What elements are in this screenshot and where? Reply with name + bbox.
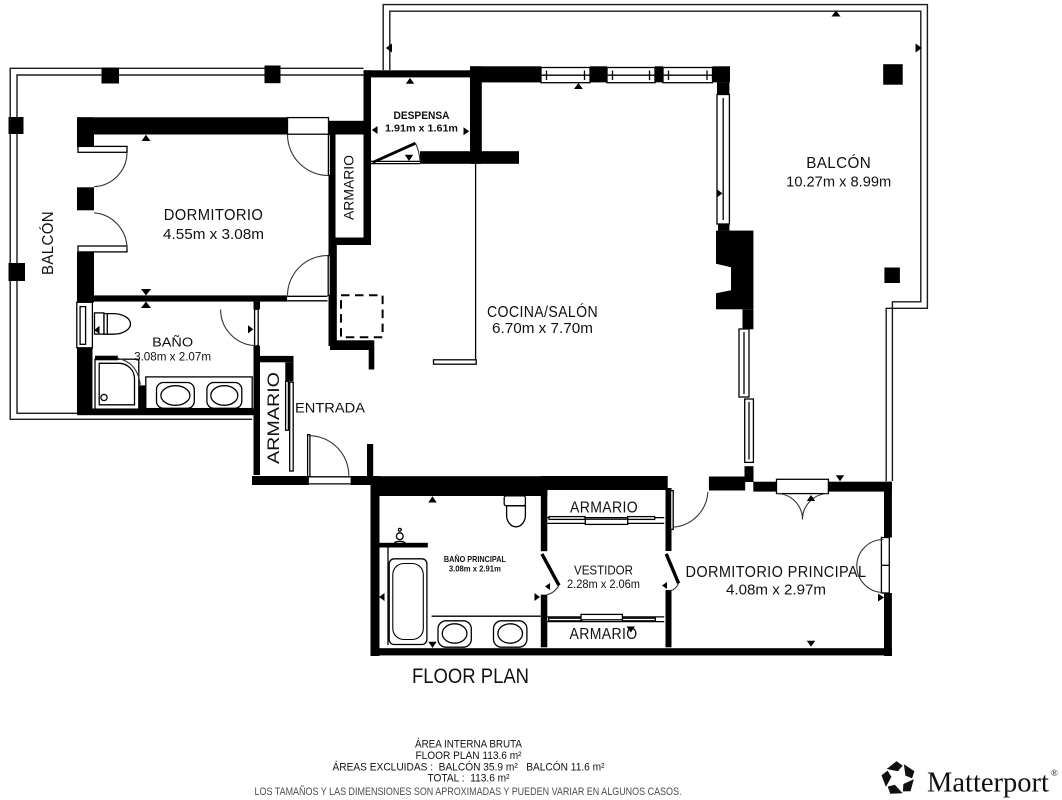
svg-text:FLOOR PLAN: FLOOR PLAN: [412, 665, 529, 688]
svg-text:FLOOR PLAN 113.6 m²: FLOOR PLAN 113.6 m²: [416, 750, 522, 762]
svg-text:BALCÓN: BALCÓN: [806, 155, 871, 172]
svg-text:BAÑO: BAÑO: [152, 335, 193, 350]
svg-text:BALCÓN: BALCÓN: [40, 211, 57, 275]
svg-text:ARMARIO: ARMARIO: [264, 372, 283, 464]
svg-text:ARMARIO: ARMARIO: [342, 155, 357, 220]
svg-text:ÁREA INTERNA BRUTA: ÁREA INTERNA BRUTA: [415, 738, 523, 751]
svg-text:DORMITORIO: DORMITORIO: [164, 207, 264, 224]
svg-text:®: ®: [1051, 768, 1058, 778]
svg-text:2.28m x 2.06m: 2.28m x 2.06m: [567, 577, 640, 591]
svg-text:TOTAL : 113.6 m²: TOTAL : 113.6 m²: [428, 773, 510, 785]
svg-text:DORMITORIO PRINCIPAL: DORMITORIO PRINCIPAL: [686, 564, 867, 581]
svg-text:10.27m x 8.99m: 10.27m x 8.99m: [786, 175, 891, 191]
svg-text:4.08m x 2.97m: 4.08m x 2.97m: [726, 583, 826, 599]
svg-text:DESPENSA: DESPENSA: [394, 110, 450, 122]
svg-text:LOS TAMAÑOS Y LAS DIMENSIONES: LOS TAMAÑOS Y LAS DIMENSIONES SON APROXI…: [255, 785, 682, 798]
svg-text:ARMARIO: ARMARIO: [570, 500, 638, 517]
svg-text:3.08m x 2.07m: 3.08m x 2.07m: [134, 352, 211, 364]
svg-text:4.55m x 3.08m: 4.55m x 3.08m: [163, 227, 264, 243]
svg-text:1.91m x 1.61m: 1.91m x 1.61m: [385, 124, 458, 135]
svg-text:ARMARIO: ARMARIO: [570, 626, 638, 643]
svg-text:Matterport: Matterport: [927, 768, 1049, 799]
svg-text:6.70m x 7.70m: 6.70m x 7.70m: [492, 321, 593, 337]
svg-text:3.08m x 2.91m: 3.08m x 2.91m: [449, 564, 501, 574]
svg-text:ENTRADA: ENTRADA: [295, 400, 366, 416]
svg-text:COCINA/SALÓN: COCINA/SALÓN: [487, 304, 598, 321]
svg-text:BAÑO PRINCIPAL: BAÑO PRINCIPAL: [444, 554, 506, 564]
svg-text:VESTIDOR: VESTIDOR: [574, 563, 633, 578]
